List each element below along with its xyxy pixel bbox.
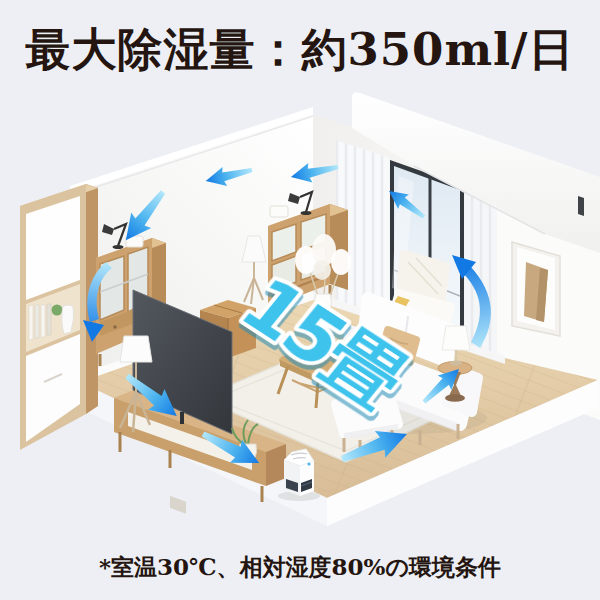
vase xyxy=(62,305,74,334)
tissue-box-2 xyxy=(270,206,288,217)
wall-niche xyxy=(512,242,560,336)
bookshelf xyxy=(20,184,98,450)
small-plant xyxy=(52,305,63,316)
media-box xyxy=(170,496,186,514)
door-handle xyxy=(578,196,584,216)
product-infographic: 15畳 最大除湿量：約350ml/日 *室温30℃、相対湿度80%の環境条件 xyxy=(0,0,600,600)
condition-note: *室温30℃、相対湿度80%の環境条件 xyxy=(0,552,600,583)
room-scene-svg: 15畳 xyxy=(0,0,600,600)
headline: 最大除湿量：約350ml/日 xyxy=(0,20,600,80)
indicator-light xyxy=(307,462,310,465)
